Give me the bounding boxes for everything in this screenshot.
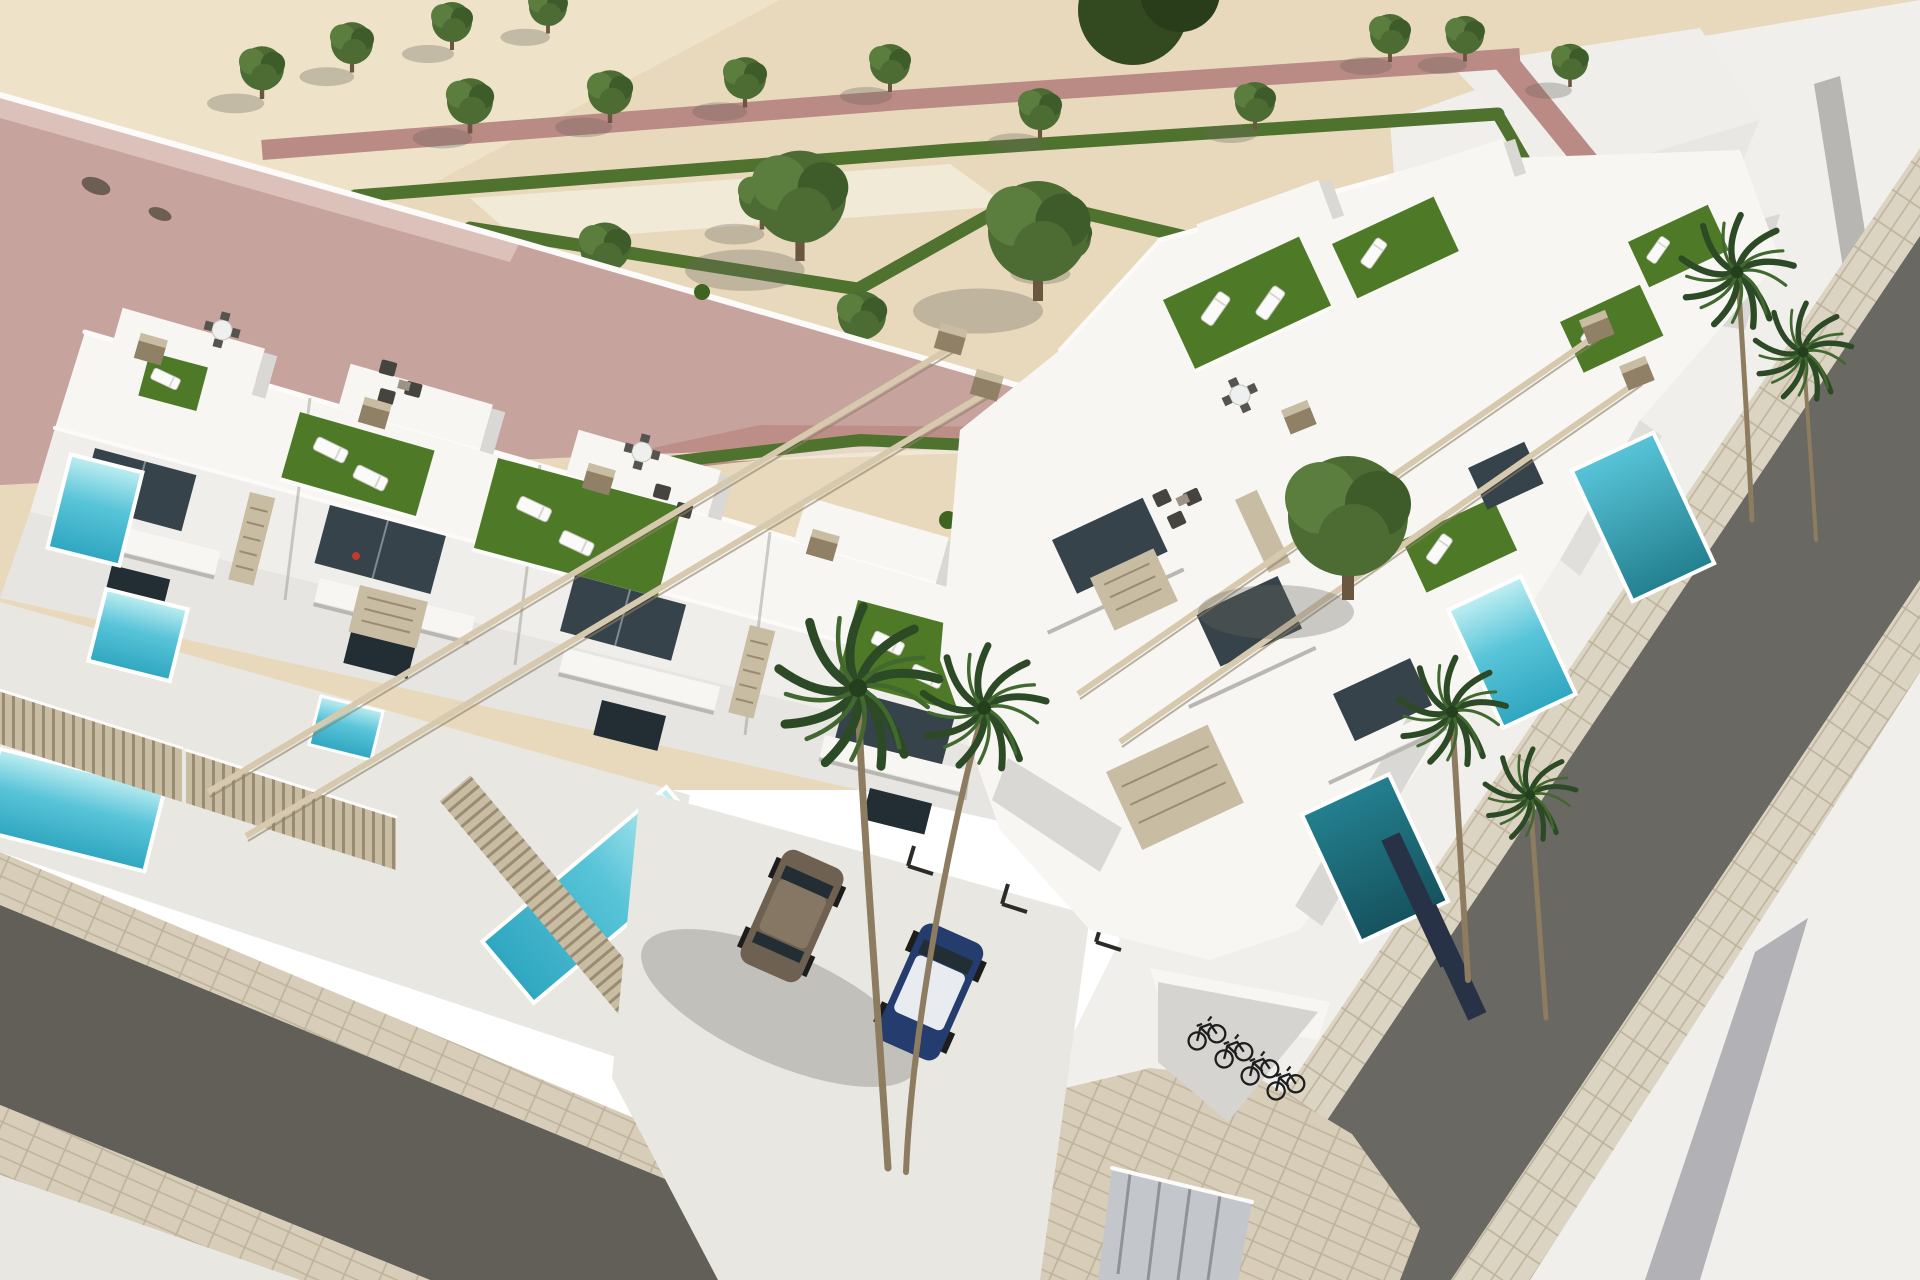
- render-stage: Aerial render: modern white townhouse de…: [0, 0, 1920, 1280]
- render-canvas: Aerial render: modern white townhouse de…: [0, 0, 1920, 1280]
- plant-pot: [694, 284, 710, 300]
- balcony-person-accent: [352, 552, 360, 560]
